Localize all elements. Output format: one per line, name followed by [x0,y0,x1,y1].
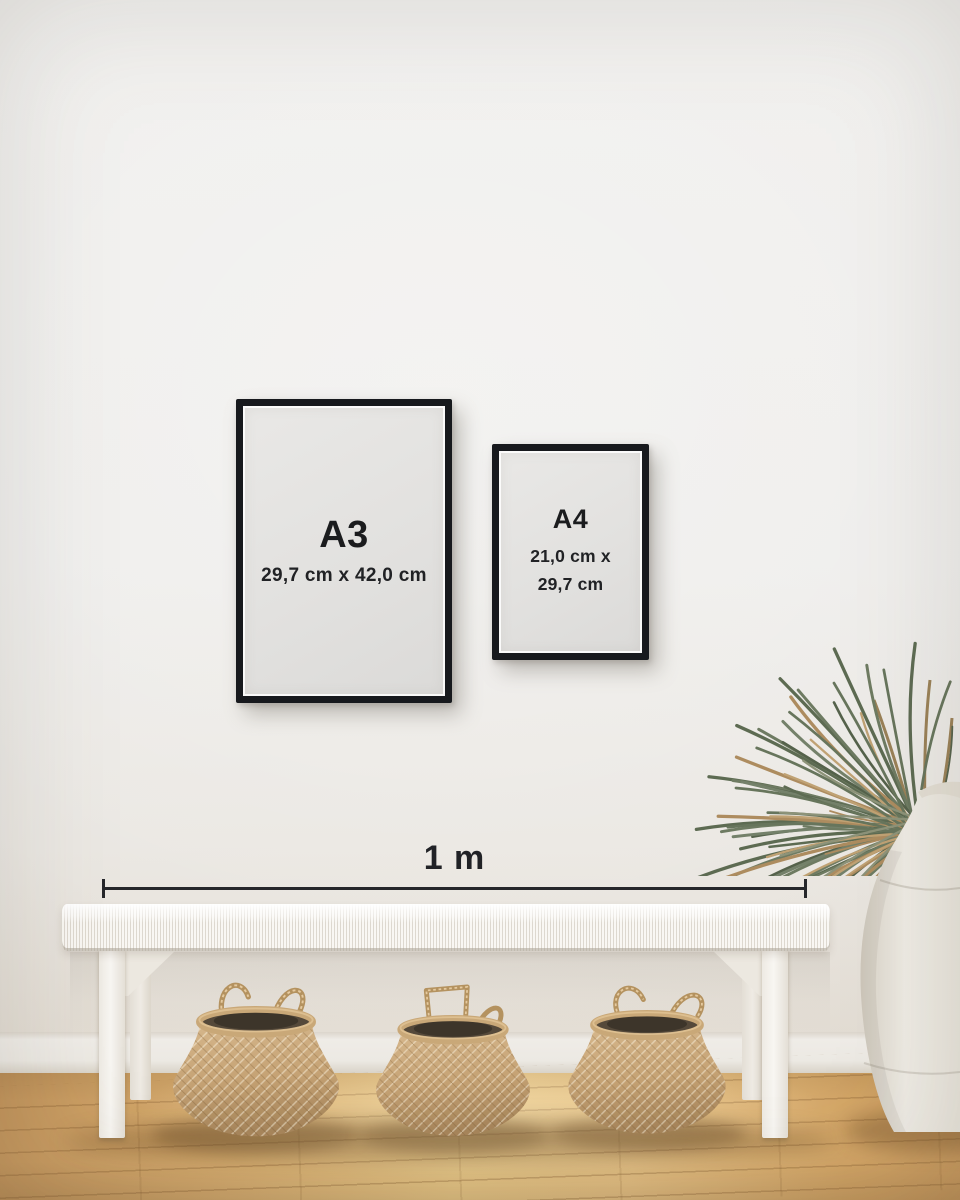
room-scene: A3 29,7 cm x 42,0 cm A4 21,0 cm x 29,7 c… [0,0,960,1200]
scale-ruler-line [102,887,807,890]
a3-frame-paper: A3 29,7 cm x 42,0 cm [243,406,445,696]
a3-size-label: A3 [319,516,369,554]
a4-size-label: A4 [553,506,589,533]
basket-body [568,1012,725,1133]
bench-leg-left-front [99,948,125,1138]
basket-body [376,1017,530,1136]
a4-size-dimensions-line1: 21,0 cm x [530,542,611,570]
bench-leg-right-front [762,948,788,1138]
white-vase [850,780,960,1140]
basket-body [173,1008,339,1136]
a4-size-dimensions-line2: 29,7 cm [530,570,611,598]
bench-seat [62,904,830,951]
a3-size-dimensions: 29,7 cm x 42,0 cm [261,565,427,587]
a3-frame: A3 29,7 cm x 42,0 cm [236,399,452,703]
a4-size-dimensions: 21,0 cm x 29,7 cm [530,542,611,598]
basket-middle [364,978,542,1140]
basket-right [556,972,738,1138]
basket-left [160,966,352,1141]
